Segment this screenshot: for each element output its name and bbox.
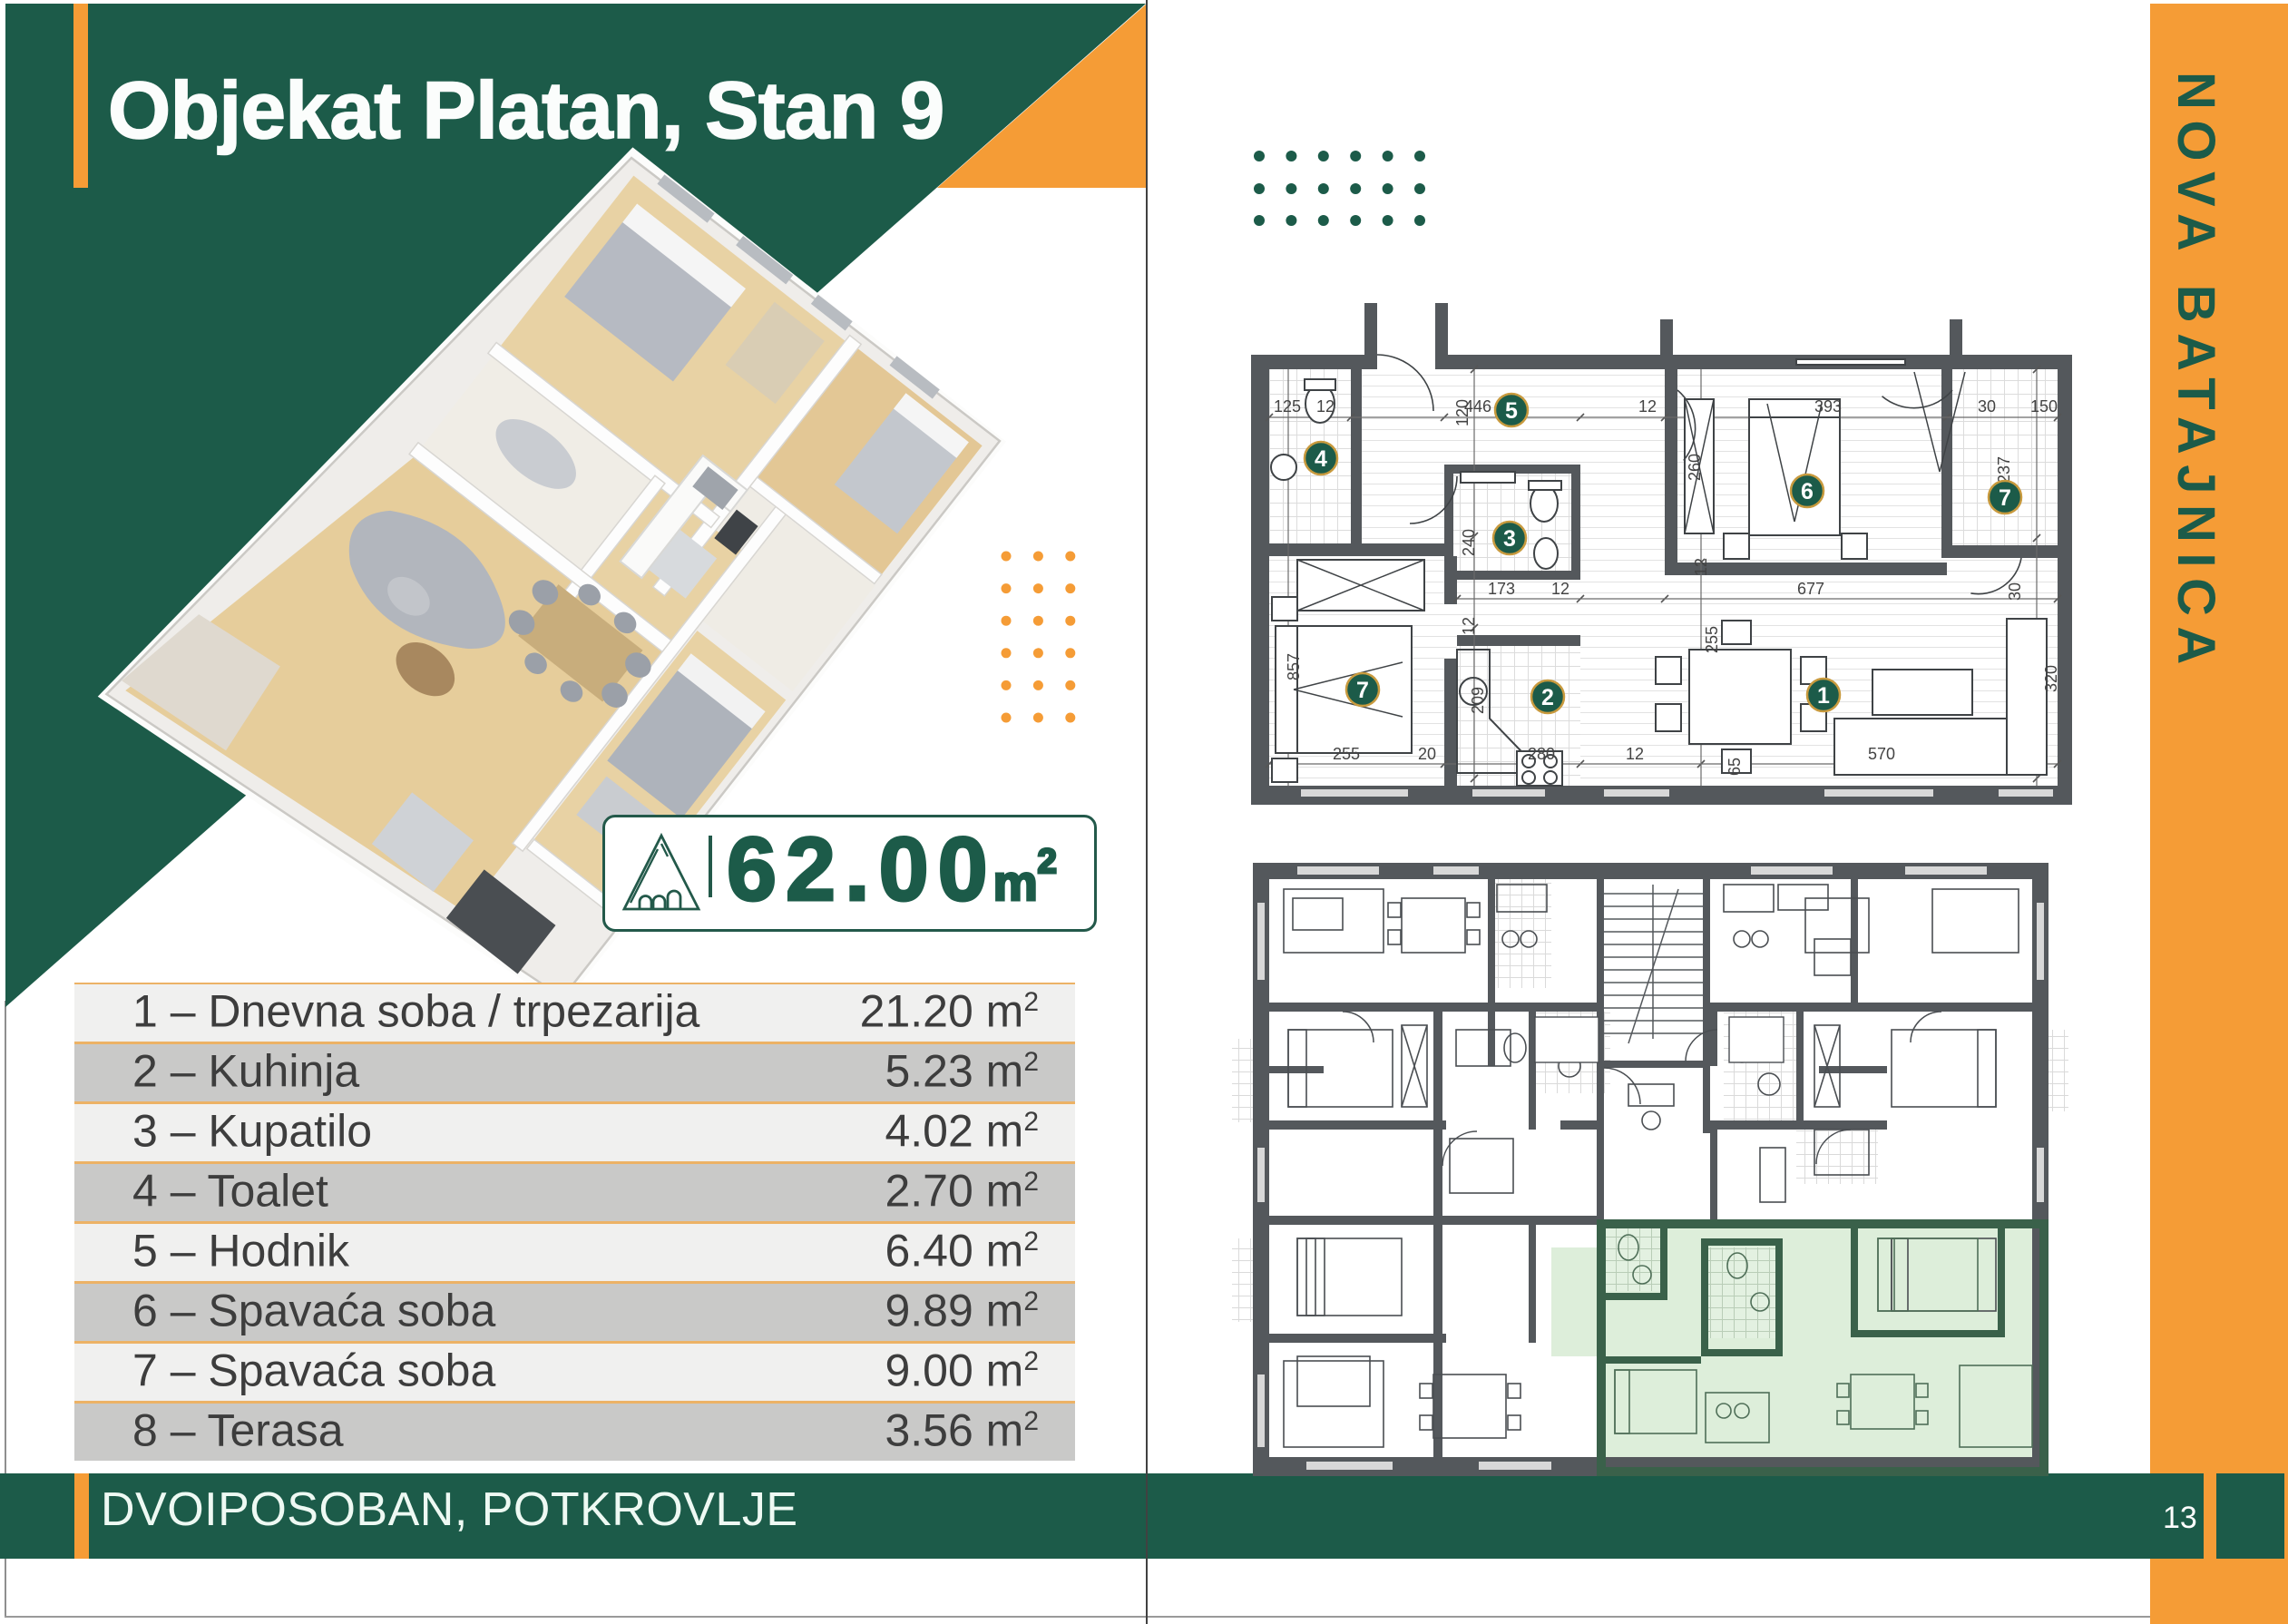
svg-text:12: 12 xyxy=(1692,558,1710,576)
svg-text:12: 12 xyxy=(1638,397,1657,416)
svg-text:120: 120 xyxy=(1453,399,1472,426)
svg-text:4: 4 xyxy=(1315,446,1327,472)
svg-text:125: 125 xyxy=(1274,397,1301,416)
svg-text:280: 280 xyxy=(1528,745,1555,763)
svg-text:30: 30 xyxy=(1978,397,1996,416)
svg-text:12: 12 xyxy=(1316,397,1335,416)
svg-text:65: 65 xyxy=(1726,758,1744,776)
svg-text:393: 393 xyxy=(1814,397,1842,416)
svg-text:255: 255 xyxy=(1703,626,1721,653)
svg-text:570: 570 xyxy=(1868,745,1895,763)
svg-text:260: 260 xyxy=(1686,454,1704,481)
svg-text:209: 209 xyxy=(1469,687,1487,714)
svg-text:12: 12 xyxy=(1551,580,1569,598)
svg-text:20: 20 xyxy=(1418,745,1436,763)
svg-text:12: 12 xyxy=(1460,617,1478,635)
svg-text:320: 320 xyxy=(2042,665,2060,692)
svg-text:30: 30 xyxy=(2006,582,2024,601)
svg-text:255: 255 xyxy=(1333,745,1360,763)
svg-text:677: 677 xyxy=(1797,580,1824,598)
svg-text:5: 5 xyxy=(1505,398,1518,424)
svg-text:240: 240 xyxy=(1460,529,1478,556)
svg-text:857: 857 xyxy=(1285,653,1303,680)
svg-text:3: 3 xyxy=(1503,526,1516,552)
svg-text:7: 7 xyxy=(1356,678,1369,703)
svg-text:2: 2 xyxy=(1541,685,1554,710)
svg-text:12: 12 xyxy=(1626,745,1644,763)
svg-text:237: 237 xyxy=(1995,456,2013,484)
svg-text:6: 6 xyxy=(1801,479,1814,504)
svg-text:7: 7 xyxy=(1999,485,2011,511)
svg-text:150: 150 xyxy=(2030,397,2058,416)
svg-text:1: 1 xyxy=(1817,683,1830,709)
svg-text:173: 173 xyxy=(1488,580,1515,598)
